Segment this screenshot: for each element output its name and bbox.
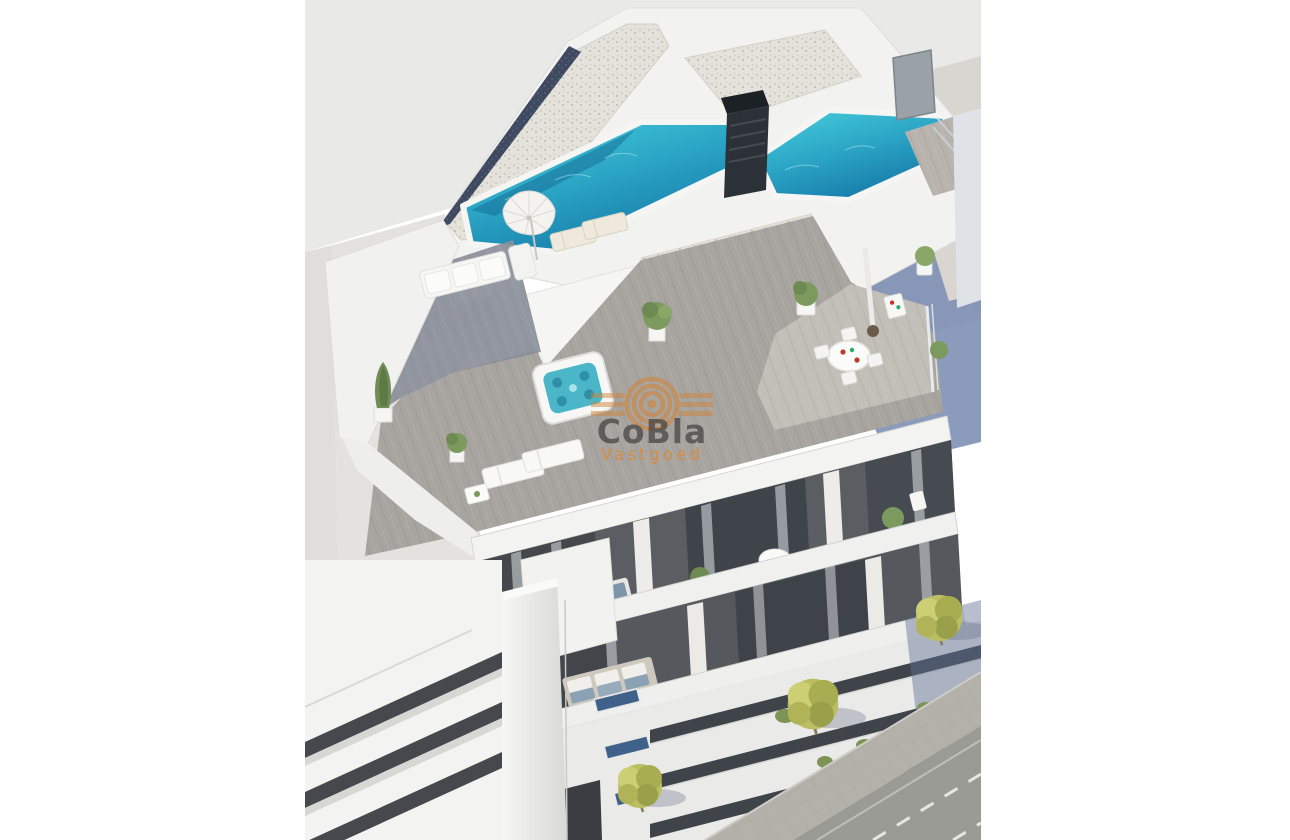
- render-image: CoBla Vastgoed: [305, 0, 981, 840]
- table-plate-red: [840, 349, 845, 354]
- table-plate-green: [850, 348, 854, 352]
- chimney-vent: [721, 90, 769, 198]
- right-parapet-shaded: [953, 108, 981, 308]
- neighbor-building: [305, 560, 502, 840]
- roof-access-door: [893, 50, 935, 120]
- round-dining-table: [828, 341, 870, 371]
- table-plate-red-2: [854, 357, 859, 362]
- party-wall-pillar: [502, 578, 567, 840]
- parasol-base: [867, 325, 879, 337]
- architectural-render-page: CoBla Vastgoed: [0, 0, 1290, 840]
